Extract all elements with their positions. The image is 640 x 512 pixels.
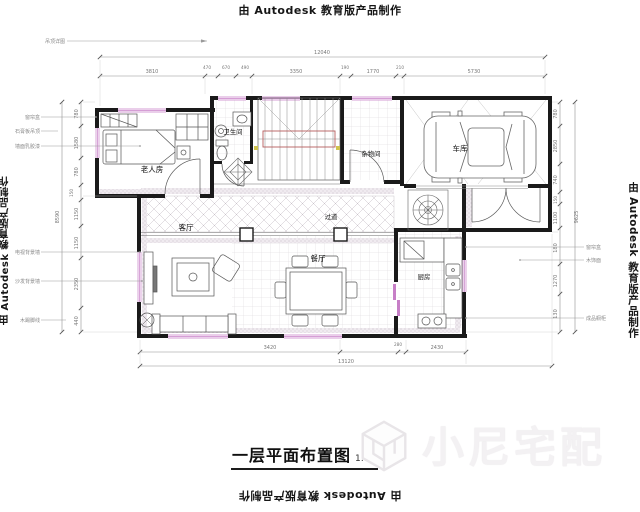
note-left-5: 木踢脚线 xyxy=(20,317,40,324)
drawing-title-scale: 1:80 xyxy=(355,454,375,464)
dim-bottom-1: 280 xyxy=(394,342,402,347)
room-label-elder: 老人房 xyxy=(141,164,164,174)
car-icon xyxy=(424,111,536,183)
bed-icon xyxy=(101,114,208,164)
room-label-kitchen: 厨房 xyxy=(418,272,431,281)
dim-right-1: 2850 xyxy=(553,140,559,153)
dim-right-5: 180 xyxy=(553,243,559,253)
dim-left-7: 440 xyxy=(74,316,80,326)
dim-top-0: 3810 xyxy=(146,69,159,75)
autodesk-watermark-right: 由 Autodesk 教育版产品制作 xyxy=(626,182,640,338)
note-top-left: 吊顶详图 xyxy=(45,38,65,45)
dim-left-total: 8590 xyxy=(55,211,61,224)
dim-left-0: 780 xyxy=(74,109,80,119)
note-left-4: 沙发背景墙 xyxy=(15,278,40,285)
dim-top-7: 210 xyxy=(396,65,404,70)
note-left-2: 墙面乳胶漆 xyxy=(15,143,40,150)
dim-right-6: 1270 xyxy=(553,275,559,288)
note-right-0: 窗帘盒 xyxy=(586,244,601,251)
floor-plan-canvas: 12040 3810 470 670 490 3350 190 1770 210… xyxy=(0,0,640,512)
dim-right-3: 150 xyxy=(553,196,558,204)
leader-notes-right: 窗帘盒 木饰面 成品橱柜 xyxy=(465,244,606,322)
dim-top-5: 190 xyxy=(341,65,349,70)
dim-top-4: 3350 xyxy=(290,69,303,75)
dim-right-2: 740 xyxy=(553,175,559,185)
room-label-garage: 车库 xyxy=(453,143,468,153)
autodesk-watermark-top: 由 Autodesk 教育版产品制作 xyxy=(238,2,401,18)
dim-bottom-total: 13120 xyxy=(338,359,354,365)
dim-right-0: 780 xyxy=(553,109,559,119)
note-right-2: 成品橱柜 xyxy=(586,315,606,322)
dim-left-3: 150 xyxy=(69,189,74,197)
dim-left-2: 780 xyxy=(74,167,80,177)
room-label-hallway: 过道 xyxy=(325,212,338,221)
dim-bottom-2: 2430 xyxy=(431,345,444,351)
dim-left-1: 1580 xyxy=(74,137,80,150)
dim-top-3: 490 xyxy=(241,65,249,70)
leader-note-top-left: 吊顶详图 xyxy=(45,38,207,45)
dim-top-8: 5730 xyxy=(468,69,481,75)
autodesk-watermark-left: 由 Autodesk 教育版产品制作 xyxy=(0,176,13,325)
autodesk-watermark-bottom: 由 Autodesk 教育版产品制作 xyxy=(238,488,401,504)
living-furniture xyxy=(140,252,241,334)
note-right-1: 木饰面 xyxy=(586,257,601,264)
note-left-0: 窗帘盒 xyxy=(25,114,40,121)
dim-top-1: 470 xyxy=(203,65,211,70)
drawing-title-text: 一层平面布置图 xyxy=(232,442,351,466)
dim-top-total: 12040 xyxy=(314,50,330,56)
note-left-1: 石膏板吊顶 xyxy=(15,128,40,135)
note-left-3: 电视背景墙 xyxy=(15,249,40,256)
dim-right-total: 9625 xyxy=(574,211,580,224)
room-label-storage: 杂物间 xyxy=(362,149,381,158)
dim-top-2: 670 xyxy=(222,65,230,70)
dim-bottom-0: 3420 xyxy=(264,345,277,351)
dim-top-6: 1770 xyxy=(367,69,380,75)
dim-left-5: 1150 xyxy=(74,237,80,250)
room-label-bath: 卫生间 xyxy=(224,127,243,136)
stairs-icon xyxy=(254,98,340,180)
dim-left-6: 2350 xyxy=(74,278,80,291)
drawing-title: 一层平面布置图 1:80 xyxy=(231,442,378,470)
dim-right-4: 1100 xyxy=(553,212,559,225)
room-label-dining: 餐厅 xyxy=(311,254,326,263)
room-label-living: 客厅 xyxy=(179,222,194,232)
dim-left-4: 1150 xyxy=(74,208,80,221)
dim-right-7: 130 xyxy=(553,309,559,319)
